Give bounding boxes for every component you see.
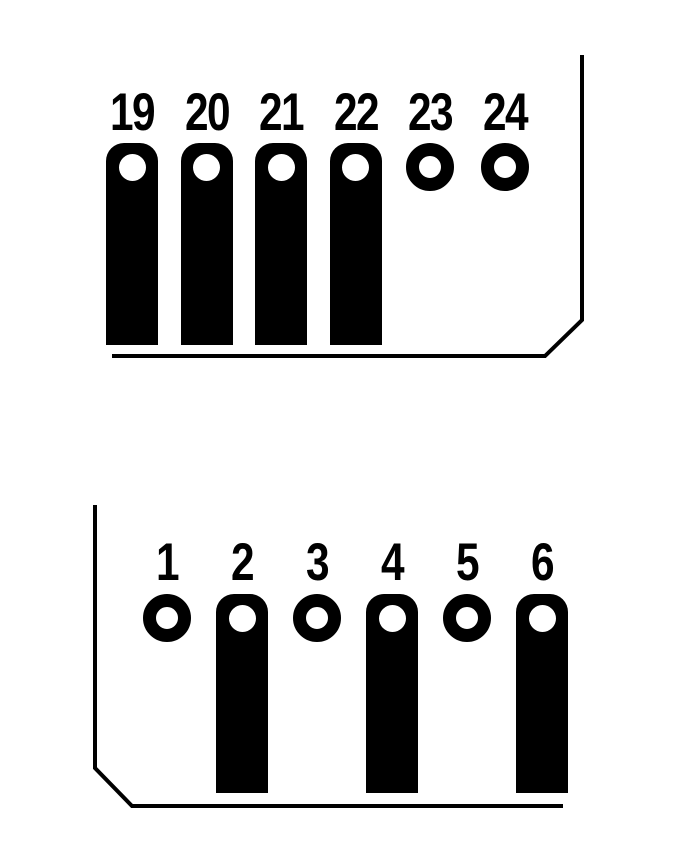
pin-label-5: 5 bbox=[431, 542, 503, 584]
pin-5-ring bbox=[443, 594, 491, 642]
pin-label-3: 3 bbox=[281, 542, 353, 584]
pin-4-bar bbox=[366, 594, 418, 793]
pin-label-4: 4 bbox=[356, 542, 428, 584]
pin-6-hole bbox=[529, 605, 556, 632]
lower-connector: 123456 bbox=[0, 0, 675, 863]
pin-2-bar bbox=[216, 594, 268, 793]
pin-1-ring bbox=[143, 594, 191, 642]
pin-label-2: 2 bbox=[206, 542, 278, 584]
pin-3-ring bbox=[293, 594, 341, 642]
pin-2-hole bbox=[229, 605, 256, 632]
pin-label-6: 6 bbox=[506, 542, 578, 584]
pinout-diagram: 192021222324123456 bbox=[0, 0, 675, 863]
pin-6-bar bbox=[516, 594, 568, 793]
pin-label-1: 1 bbox=[131, 542, 203, 584]
pin-4-hole bbox=[379, 605, 406, 632]
